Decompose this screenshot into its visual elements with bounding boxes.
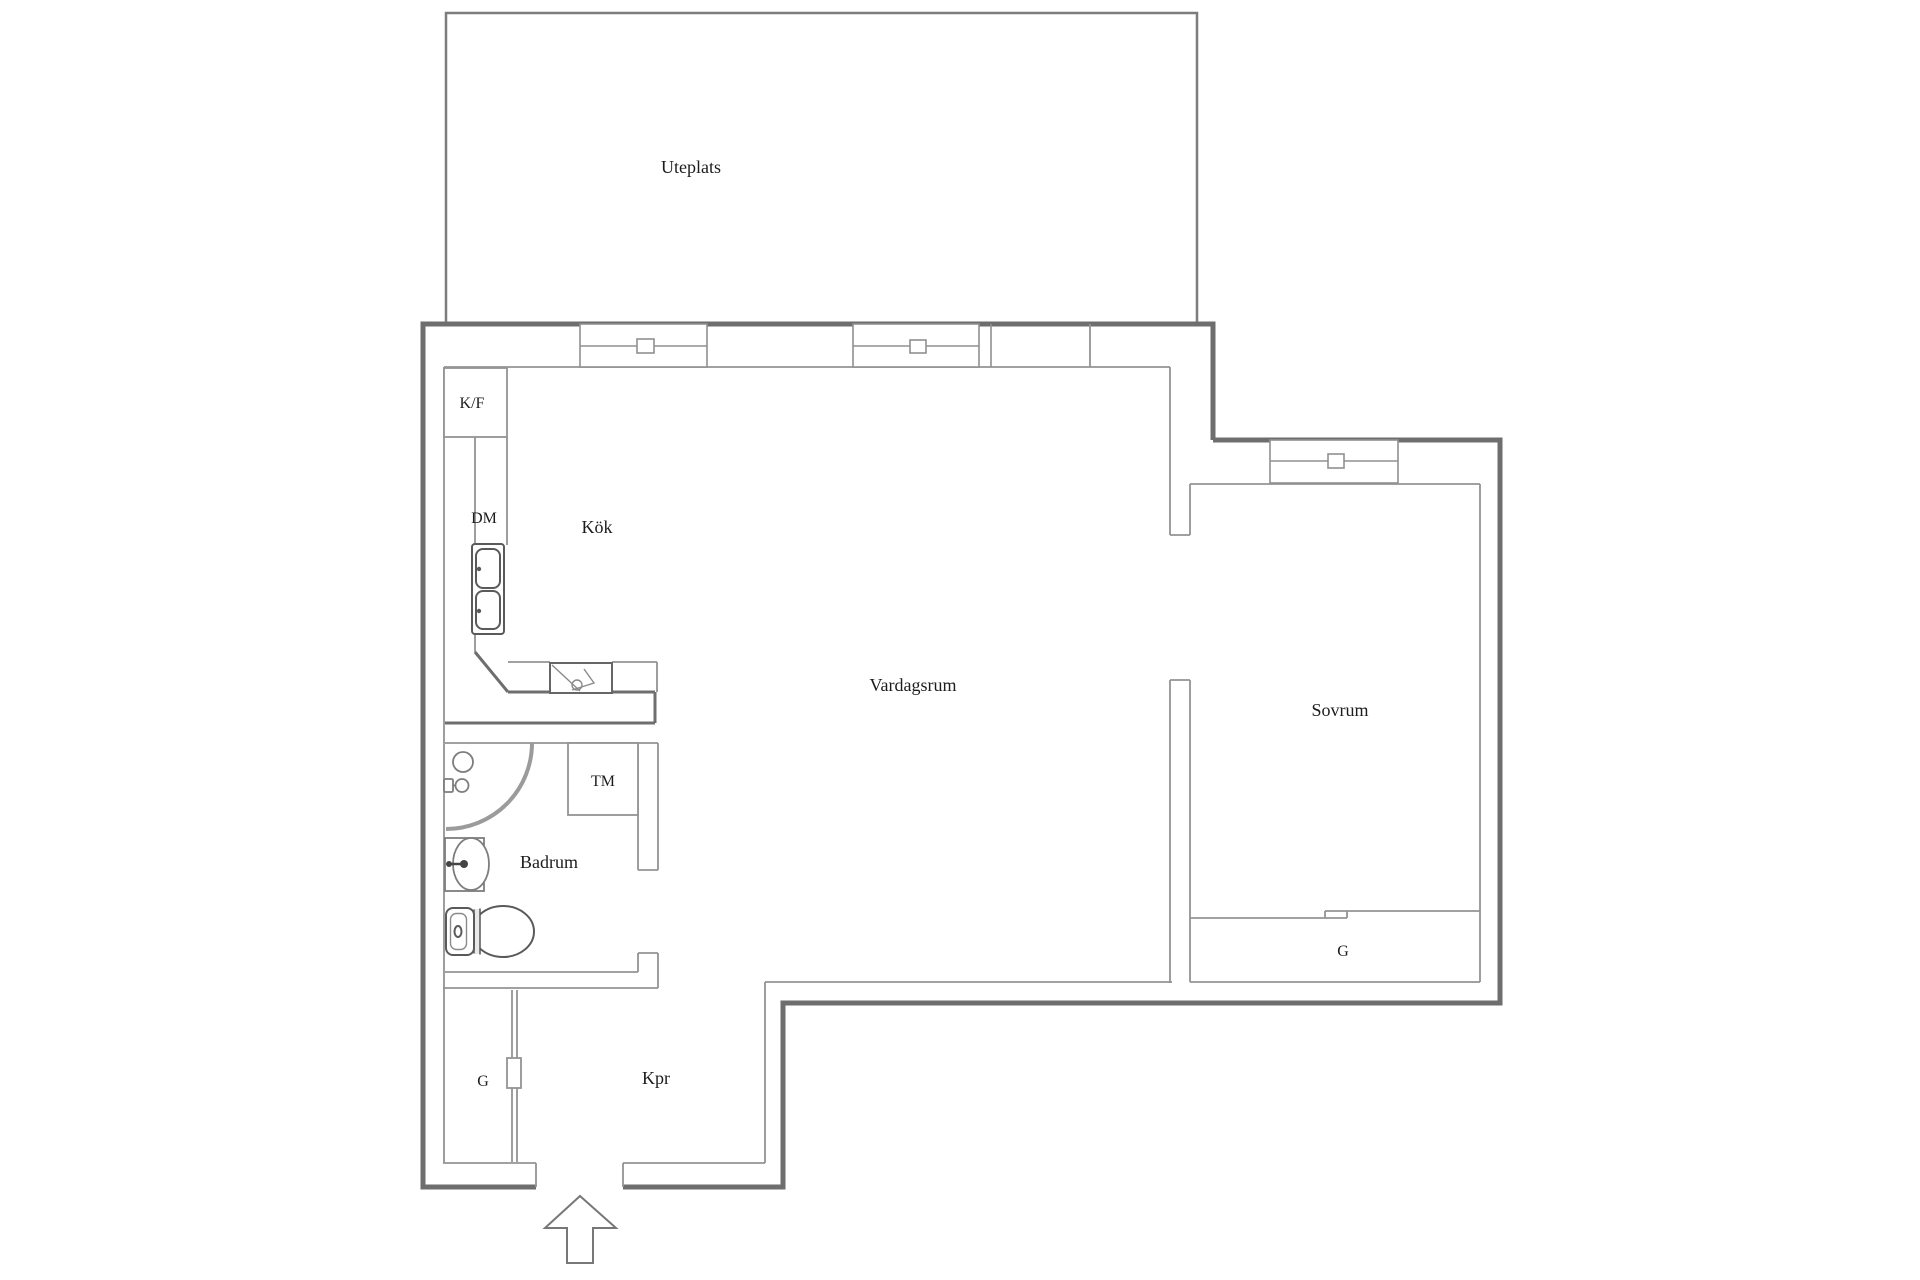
- washbasin-icon: [445, 838, 489, 891]
- fixture-label-wardrobe-hall: G: [477, 1073, 489, 1090]
- room-label-kok: Kök: [582, 517, 613, 537]
- toilet-icon: [446, 906, 534, 957]
- fixture-label-fridge-freezer: K/F: [460, 395, 485, 412]
- kitchen-sink-icon: [472, 544, 504, 634]
- room-label-kpr: Kpr: [642, 1068, 670, 1088]
- window-icon: [1270, 440, 1398, 483]
- fixture-label-washing-machine: TM: [591, 773, 615, 790]
- wardrobe-door-handle-icon: [507, 1058, 521, 1088]
- floor-plan-svg: Uteplats K/F DM Kök Vardagsrum Badrum TM…: [0, 0, 1920, 1280]
- fixture-label-dishwasher: DM: [471, 510, 497, 527]
- fixture-label-wardrobe-bedroom: G: [1337, 943, 1349, 960]
- room-label-vardagsrum: Vardagsrum: [870, 675, 957, 695]
- patio-outline: [446, 13, 1197, 324]
- room-label-uteplats: Uteplats: [661, 157, 721, 177]
- room-label-sovrum: Sovrum: [1311, 700, 1368, 720]
- shower-icon: [444, 752, 473, 792]
- window-icon: [853, 324, 991, 367]
- floor-plan-canvas: Uteplats K/F DM Kök Vardagsrum Badrum TM…: [0, 0, 1920, 1280]
- entrance-arrow-icon: [545, 1196, 616, 1263]
- window-icon: [580, 324, 707, 367]
- stove-icon: [550, 663, 612, 693]
- room-label-badrum: Badrum: [520, 852, 578, 872]
